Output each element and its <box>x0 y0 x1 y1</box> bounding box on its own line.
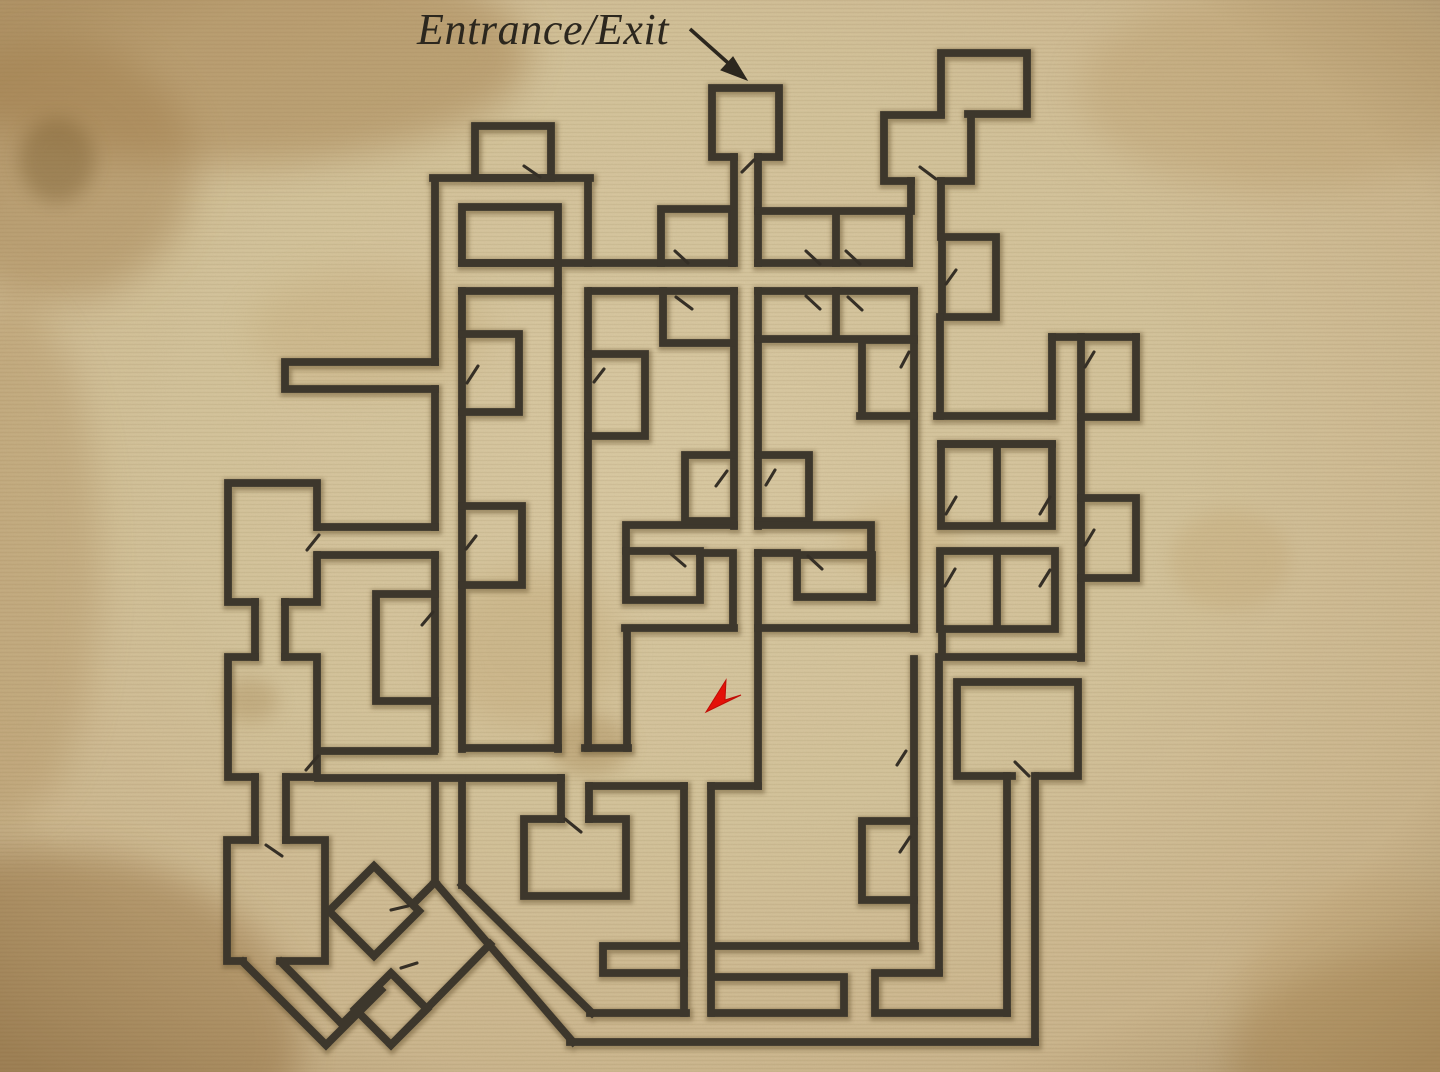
svg-text:Entrance/Exit: Entrance/Exit <box>416 5 670 54</box>
